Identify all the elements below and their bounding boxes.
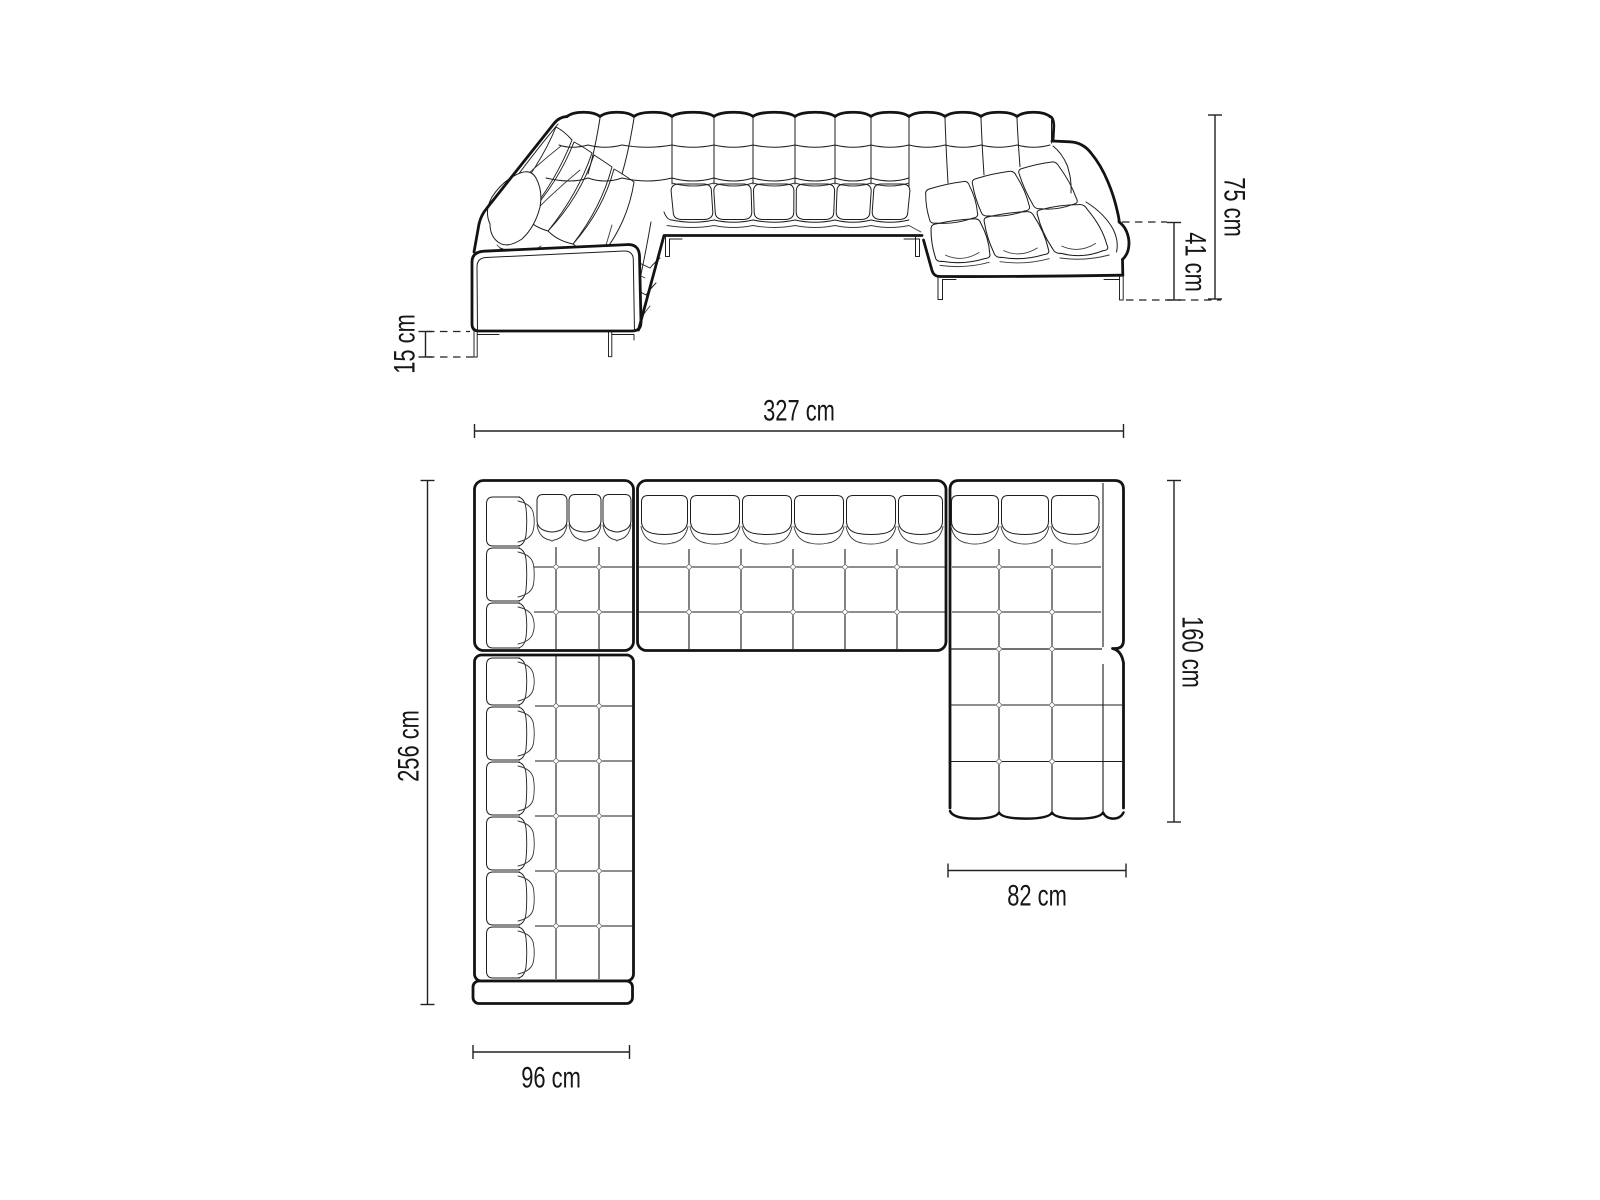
svg-text:75 cm: 75 cm: [1218, 177, 1252, 237]
svg-text:41 cm: 41 cm: [1179, 232, 1213, 292]
svg-text:160 cm: 160 cm: [1176, 616, 1210, 688]
svg-text:82 cm: 82 cm: [1007, 878, 1067, 912]
svg-text:15 cm: 15 cm: [387, 314, 421, 374]
svg-text:256 cm: 256 cm: [391, 710, 425, 782]
svg-text:96 cm: 96 cm: [521, 1060, 581, 1094]
svg-text:327 cm: 327 cm: [763, 393, 835, 427]
